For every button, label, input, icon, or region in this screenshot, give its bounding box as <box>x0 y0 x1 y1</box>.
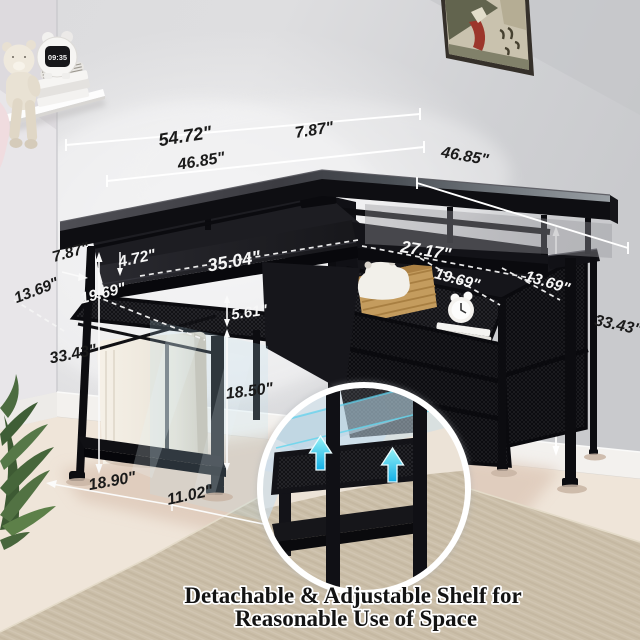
svg-text:Detachable & Adjustable Shelf: Detachable & Adjustable Shelf for <box>184 583 521 608</box>
svg-text:09:35: 09:35 <box>48 53 67 62</box>
svg-text:Reasonable Use of Space: Reasonable Use of Space <box>235 606 477 631</box>
